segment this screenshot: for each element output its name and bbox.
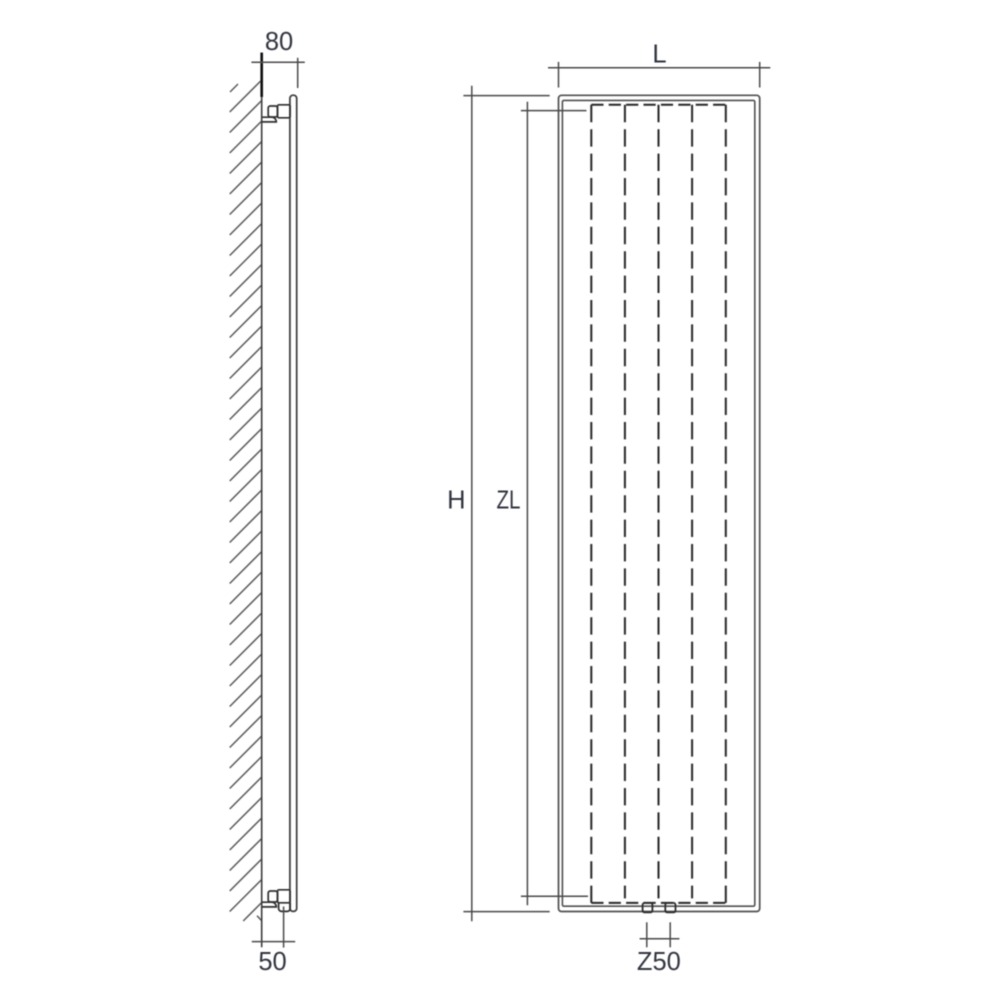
svg-text:ZL: ZL (497, 487, 521, 515)
svg-text:80: 80 (265, 28, 293, 56)
svg-text:L: L (652, 40, 666, 68)
svg-text:50: 50 (258, 948, 286, 976)
svg-text:Z50: Z50 (637, 948, 681, 976)
svg-text:H: H (447, 487, 465, 515)
